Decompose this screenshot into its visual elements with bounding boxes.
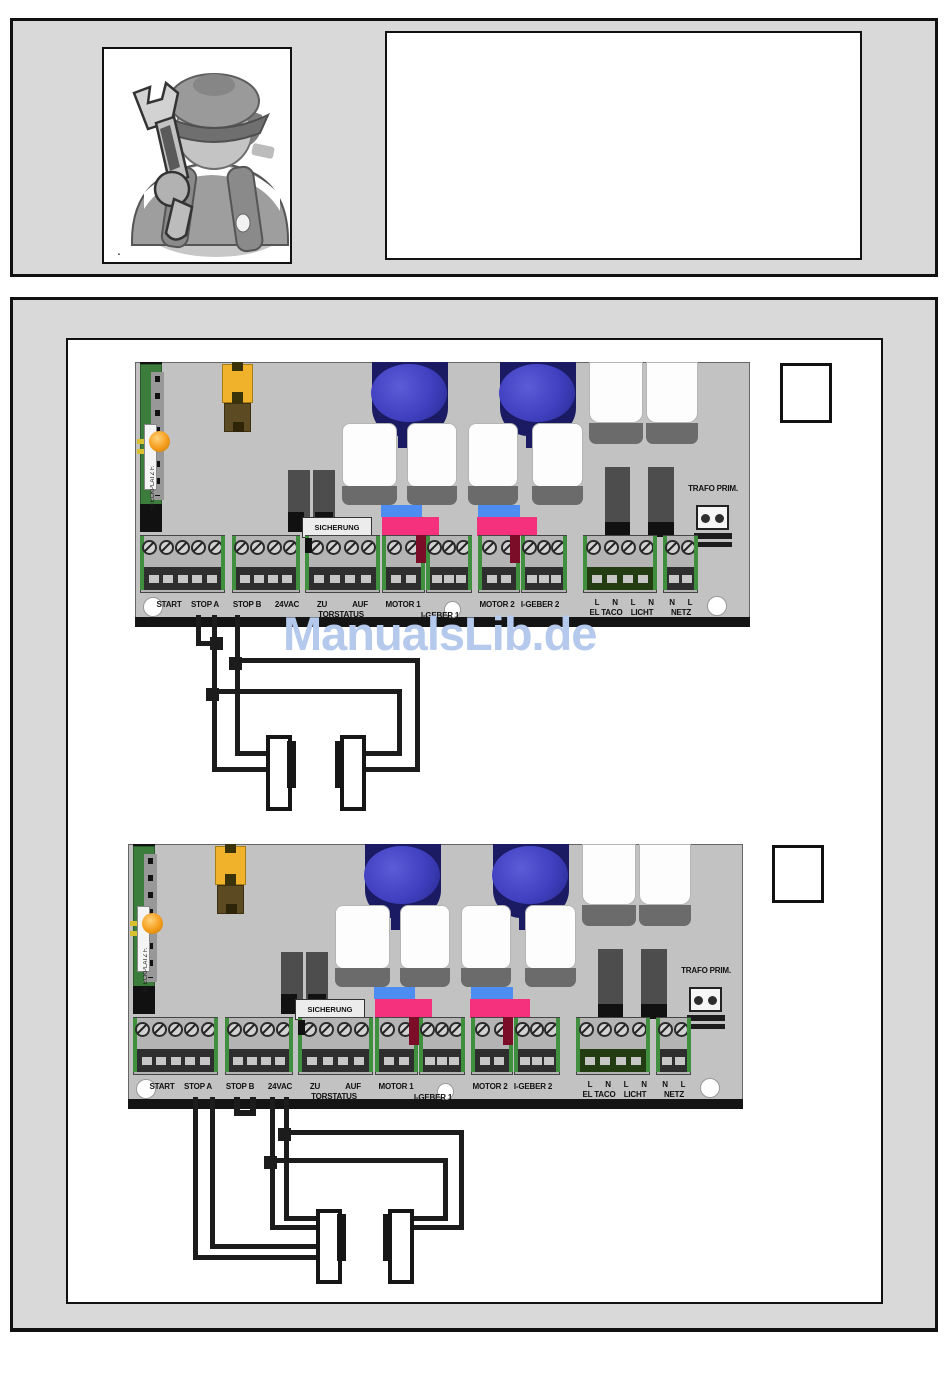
screw-terminal (201, 1022, 216, 1037)
screw-terminal (456, 540, 471, 555)
relay-base (646, 423, 698, 444)
switch-contact (383, 1214, 392, 1261)
figure-number-box-1 (780, 363, 832, 423)
terminal-slot (185, 1057, 195, 1065)
relay (646, 362, 698, 423)
fuse-clip (233, 422, 244, 432)
screw-terminal (184, 1022, 199, 1037)
label-licht: LICHT (631, 608, 654, 617)
capacitor-top (364, 846, 440, 904)
relay (639, 844, 691, 905)
label-zu: ZU (310, 1082, 320, 1091)
relay (461, 905, 511, 969)
terminal-slot (494, 1057, 504, 1065)
terminal-slot (480, 1057, 490, 1065)
label-pin-n: N (641, 1080, 647, 1089)
label-auf: AUF (345, 1082, 361, 1091)
solder-pad (130, 931, 137, 936)
screw-terminal (159, 540, 174, 555)
terminal-slot (682, 575, 692, 583)
terminal-block-igeber2 (514, 1017, 560, 1075)
label-24vac: 24VAC (268, 1082, 292, 1091)
terminal-slot (616, 1057, 626, 1065)
terminal-slot (163, 575, 173, 583)
terminal-slot (406, 575, 416, 583)
trafo-pin (715, 514, 724, 523)
switch-contact (287, 741, 296, 788)
technician-icon-box: . (102, 47, 292, 264)
terminal-slot (551, 575, 561, 583)
relay (400, 905, 450, 969)
motor-terminal-divider (503, 1017, 513, 1045)
screw-terminal (482, 540, 497, 555)
label-motor1: MOTOR 1 (379, 1082, 414, 1091)
screw-terminal (283, 540, 298, 555)
screw-terminal (665, 540, 680, 555)
relay-base (342, 486, 397, 505)
terminal-slot (432, 575, 442, 583)
terminal-slot (254, 575, 264, 583)
screw-terminal (597, 1022, 612, 1037)
terminal-block-igeber1 (419, 1017, 465, 1075)
label-netz: NETZ (671, 608, 691, 617)
relay-base (639, 905, 691, 926)
screw-terminal (579, 1022, 594, 1037)
terminal-slot (247, 1057, 257, 1065)
screw-terminal (337, 1022, 352, 1037)
terminal-block-start-stopa (140, 535, 225, 593)
screw-terminal (152, 1022, 167, 1037)
label-pin-n: N (605, 1080, 611, 1089)
terminal-slot (384, 1057, 394, 1065)
label-pin-n: N (662, 1080, 668, 1089)
terminal-slot (282, 575, 292, 583)
technician-icon (104, 49, 290, 262)
switch-contact (335, 741, 344, 788)
label-stop-a: STOP A (191, 600, 219, 609)
capacitor-top (371, 364, 447, 422)
terminal-slot (527, 575, 537, 583)
screw-terminal (344, 540, 359, 555)
motor-connector-blue (471, 987, 513, 999)
label-torstatus: TORSTATUS (311, 1092, 357, 1101)
terminal-slot (520, 1057, 530, 1065)
terminal-block-eltaco-licht (576, 1017, 650, 1075)
relay (468, 423, 518, 487)
screw-terminal (604, 540, 619, 555)
trafo-stripe (694, 533, 732, 539)
terminal-block-netz (663, 535, 698, 593)
relay-base (335, 968, 390, 987)
trafo-terminal (689, 987, 722, 1012)
screw-terminal (475, 1022, 490, 1037)
trafo-pin (708, 996, 717, 1005)
fuse-clip (232, 362, 243, 371)
caption-dot: . (117, 242, 121, 258)
terminal-slot (437, 1057, 447, 1065)
terminal-slot (268, 575, 278, 583)
terminal-slot (233, 1057, 243, 1065)
capacitor-top (492, 846, 568, 904)
figure-number-box-2 (772, 845, 824, 903)
terminal-slot (631, 1057, 641, 1065)
relay-base (468, 486, 518, 505)
terminal-slot (662, 1057, 672, 1065)
screw-terminal (191, 540, 206, 555)
terminal-slot (345, 575, 355, 583)
terminal-slot (307, 1057, 317, 1065)
motor-connector-pink (382, 517, 439, 536)
mounting-hole (707, 596, 727, 616)
screw-terminal (537, 540, 552, 555)
terminal-slot (607, 575, 617, 583)
terminal-slot (399, 1057, 409, 1065)
terminal-slot (323, 1057, 333, 1065)
terminal-slot (156, 1057, 166, 1065)
terminal-block-stopb-24vac (232, 535, 300, 593)
screw-terminal (243, 1022, 258, 1037)
label-pin-n: N (648, 598, 654, 607)
trafo-prim-label: TRAFO PRIM. (681, 966, 731, 975)
label-start: START (149, 1082, 174, 1091)
terminal-slot (171, 1057, 181, 1065)
fuse-clip (225, 874, 236, 885)
terminal-slot (456, 575, 466, 583)
manual-page: . STECKPLATZ F. (0, 0, 950, 1381)
screw-terminal (250, 540, 265, 555)
relay-base (582, 905, 636, 926)
solder-pad (137, 439, 144, 444)
terminal-slot (314, 575, 324, 583)
trafo-stripe (687, 1015, 725, 1021)
fuse-clip (232, 392, 243, 403)
terminal-slot (600, 1057, 610, 1065)
terminal-slot (240, 575, 250, 583)
motor-connector-pink (470, 999, 530, 1018)
terminal-slot (532, 1057, 542, 1065)
label-stop-b: STOP B (226, 1082, 254, 1091)
terminal-slot (142, 1057, 152, 1065)
screw-terminal (168, 1022, 183, 1037)
screw-terminal (614, 1022, 629, 1037)
terminal-slot (544, 1057, 554, 1065)
screw-terminal (586, 540, 601, 555)
relay (525, 905, 576, 969)
screw-terminal (135, 1022, 150, 1037)
steckplatz-label: STECKPLATZ F. (150, 434, 156, 510)
relay (342, 423, 397, 487)
screw-terminal (354, 1022, 369, 1037)
relay-base (400, 968, 450, 987)
screw-terminal (234, 540, 249, 555)
trafo-terminal (696, 505, 729, 530)
screw-terminal (522, 540, 537, 555)
motor-connector-blue (478, 505, 520, 517)
screw-terminal (551, 540, 566, 555)
label-pin-l: L (624, 1080, 629, 1089)
terminal-slot (585, 1057, 595, 1065)
motor-connector-pink (477, 517, 537, 536)
motor-connector-blue (374, 987, 415, 999)
terminal-slot (354, 1057, 364, 1065)
terminal-slot (444, 575, 454, 583)
terminal-slot (623, 575, 633, 583)
switch-contact (337, 1214, 346, 1261)
label-pin-l: L (588, 1080, 593, 1089)
relay (589, 362, 643, 423)
terminal-slot (638, 575, 648, 583)
relay-base (589, 423, 643, 444)
terminal-block-torstatus (305, 535, 380, 593)
label-motor2: MOTOR 2 (473, 1082, 508, 1091)
relay-base (525, 968, 576, 987)
trafo-pin (701, 514, 710, 523)
terminal-slot (330, 575, 340, 583)
controller-board-1: STECKPLATZ F. SICHERUNG TRAFO PRIM. (135, 362, 750, 628)
screw-terminal (632, 1022, 647, 1037)
terminal-block-eltaco-licht (583, 535, 657, 593)
label-pin-n: N (612, 598, 618, 607)
terminal-slot (192, 575, 202, 583)
screw-terminal (530, 1022, 545, 1037)
terminal-slot (207, 575, 217, 583)
screw-terminal (681, 540, 696, 555)
steckplatz-label: STECKPLATZ F. (143, 916, 149, 992)
motor-terminal-divider (416, 535, 426, 563)
terminal-slot (449, 1057, 459, 1065)
screw-terminal (142, 540, 157, 555)
relay-base (532, 486, 583, 505)
terminal-block-stopb-24vac (225, 1017, 293, 1075)
label-licht: LICHT (624, 1090, 647, 1099)
solder-pad (130, 921, 137, 926)
terminal-stub (298, 1020, 305, 1035)
screw-terminal (435, 1022, 450, 1037)
trafo-prim-label: TRAFO PRIM. (688, 484, 738, 493)
terminal-slot (675, 1057, 685, 1065)
screw-terminal (449, 1022, 464, 1037)
screw-terminal (208, 540, 223, 555)
label-pin-l: L (688, 598, 693, 607)
screw-terminal (276, 1022, 291, 1037)
label-pin-l: L (681, 1080, 686, 1089)
label-igeber2: I-GEBER 2 (514, 1082, 552, 1091)
screw-terminal (260, 1022, 275, 1037)
label-igeber1: I-GEBER 1 (414, 1093, 452, 1102)
terminal-slot (261, 1057, 271, 1065)
motor-connector-blue (381, 505, 422, 517)
terminal-slot (592, 575, 602, 583)
screw-terminal (380, 1022, 395, 1037)
screw-terminal (319, 1022, 334, 1037)
controller-board-2: STECKPLATZ F. SICHERUNG TRAFO PRIM. (128, 844, 743, 1110)
mounting-hole (700, 1078, 720, 1098)
terminal-slot (275, 1057, 285, 1065)
watermark: ManualsLib.de (283, 606, 596, 661)
header-section: . (10, 18, 938, 277)
screw-terminal (175, 540, 190, 555)
solder-pad (137, 449, 144, 454)
terminal-slot (149, 575, 159, 583)
fuse-clip (225, 844, 236, 853)
relay (532, 423, 583, 487)
screw-terminal (544, 1022, 559, 1037)
relay (582, 844, 636, 905)
label-pin-n: N (669, 598, 675, 607)
note-box (385, 31, 862, 260)
motor-terminal-divider (510, 535, 520, 563)
relay-base (461, 968, 511, 987)
screw-terminal (227, 1022, 242, 1037)
terminal-block-igeber1 (426, 535, 472, 593)
label-netz: NETZ (664, 1090, 684, 1099)
terminal-slot (361, 575, 371, 583)
trafo-pin (694, 996, 703, 1005)
trafo-stripe (687, 1024, 725, 1029)
relay (407, 423, 457, 487)
terminal-slot (200, 1057, 210, 1065)
label-start: START (156, 600, 181, 609)
terminal-slot (178, 575, 188, 583)
terminal-block-start-stopa (133, 1017, 218, 1075)
motor-terminal-divider (409, 1017, 419, 1045)
trafo-stripe (694, 542, 732, 547)
terminal-stub (305, 538, 312, 553)
terminal-slot (425, 1057, 435, 1065)
label-pin-l: L (631, 598, 636, 607)
terminal-block-torstatus (298, 1017, 373, 1075)
screw-terminal (515, 1022, 530, 1037)
screw-terminal (639, 540, 654, 555)
motor-connector-pink (375, 999, 432, 1018)
screw-terminal (658, 1022, 673, 1037)
terminal-block-netz (656, 1017, 691, 1075)
label-stop-a: STOP A (184, 1082, 212, 1091)
label-el-taco: EL TACO (583, 1090, 616, 1099)
terminal-slot (539, 575, 549, 583)
label-stop-b: STOP B (233, 600, 261, 609)
terminal-slot (391, 575, 401, 583)
relay (335, 905, 390, 969)
screw-terminal (387, 540, 402, 555)
screw-terminal (267, 540, 282, 555)
screw-terminal (442, 540, 457, 555)
terminal-slot (501, 575, 511, 583)
relay-base (407, 486, 457, 505)
screw-terminal (326, 540, 341, 555)
screw-terminal (674, 1022, 689, 1037)
terminal-slot (338, 1057, 348, 1065)
capacitor-top (499, 364, 575, 422)
fuse-clip (226, 904, 237, 914)
screw-terminal (361, 540, 376, 555)
terminal-slot (669, 575, 679, 583)
screw-terminal (420, 1022, 435, 1037)
terminal-block-igeber2 (521, 535, 567, 593)
screw-terminal (621, 540, 636, 555)
screw-terminal (427, 540, 442, 555)
terminal-slot (487, 575, 497, 583)
